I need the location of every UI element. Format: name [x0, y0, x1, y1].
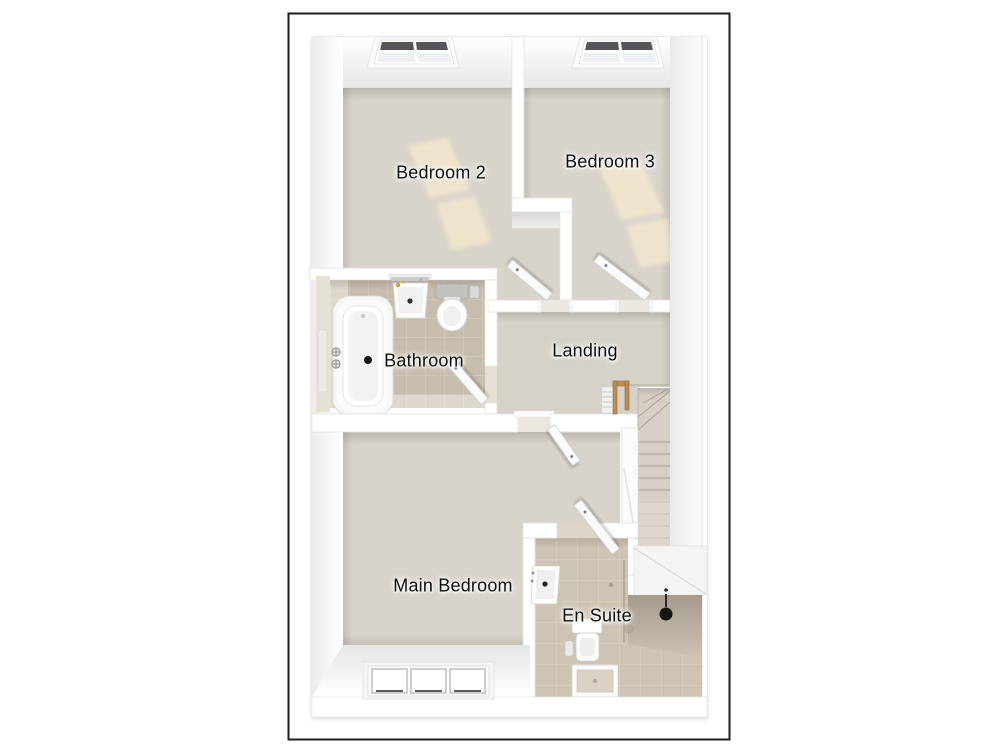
bathroom-block — [310, 268, 497, 416]
bathroom-sink-icon — [389, 274, 431, 318]
ceiling-light-bathroom-icon — [364, 356, 372, 364]
room-label-bedroom-2: Bedroom 2 — [396, 163, 486, 184]
room-label-en-suite: En Suite — [562, 606, 632, 627]
wall-niche — [318, 330, 327, 392]
stairwell-half-landing — [634, 546, 707, 595]
ensuite-sink-icon — [531, 566, 561, 604]
roll-holder-icon — [470, 286, 479, 298]
interior-walls-middle — [312, 411, 638, 432]
room-label-bedroom-3: Bedroom 3 — [565, 152, 655, 173]
skylight-window-bedroom-2-icon — [367, 37, 459, 68]
main-bedroom-window-icon — [363, 662, 494, 699]
shower-tray-icon — [572, 665, 618, 697]
room-label-bathroom: Bathroom — [384, 351, 464, 372]
room-label-main-bedroom: Main Bedroom — [393, 576, 512, 597]
room-label-landing: Landing — [552, 341, 617, 362]
floor-plan-page: Bedroom 2 Bedroom 3 Bathroom Landing Mai… — [0, 0, 1000, 750]
skylight-window-bedroom-3-icon — [572, 37, 664, 68]
floor-plan-rendering — [0, 0, 1000, 750]
